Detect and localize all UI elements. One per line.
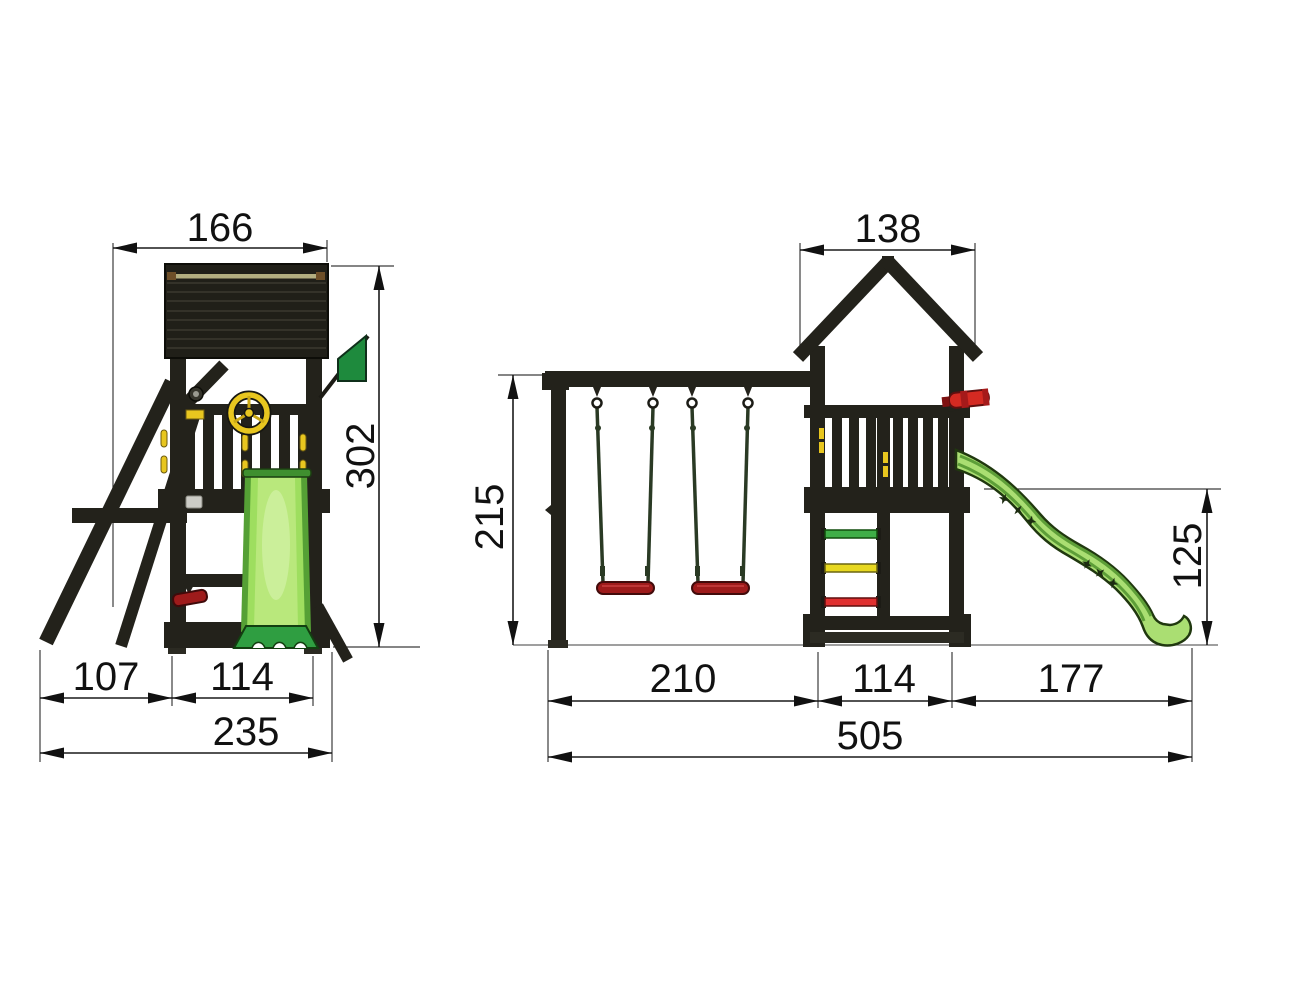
slide-side [234,469,318,648]
swing-seat [597,582,654,594]
label-tag [186,496,202,508]
dim-front-slide-height: 125 [1166,523,1210,590]
ladder [821,528,881,608]
flag-pennant [338,336,366,381]
ladder-rung-green [825,530,877,538]
swing-post [551,388,566,644]
dim-side-total-height: 302 [339,423,383,490]
post-foot [168,648,186,654]
ladder-rung-red [825,598,877,606]
slide-front [956,450,1191,646]
platform-front [804,498,970,513]
dim-front-total-width: 505 [837,714,904,758]
swings [593,387,753,594]
dim-side-total-depth: 235 [213,710,280,754]
roof-trim [168,274,324,279]
dim-front-slide-span: 177 [1038,657,1105,701]
swing-frame [542,371,817,648]
front-view: 138 215 125 210 114 177 505 [468,207,1221,763]
swing-seat [692,582,749,594]
dim-front-swing-span: 210 [650,657,717,701]
dim-front-roof-width: 138 [855,207,922,251]
base-frame-front [803,614,971,647]
railing-bottom-rail [804,487,970,499]
dim-front-swing-height: 215 [468,484,512,551]
yellow-tag [186,410,204,419]
swing-ropes [597,407,748,583]
dimension-drawing-playset: 166 302 107 114 235 [0,0,1300,1000]
ladder-rung-yellow [825,564,877,572]
dim-front-base-width: 114 [852,657,916,701]
dim-side-roof-width: 166 [187,206,254,250]
rope-rings [593,399,753,408]
drawing-canvas: 166 302 107 114 235 [0,0,1300,1000]
dim-side-base-depth: 114 [210,655,274,699]
roof-side [165,264,328,358]
swing-top-beam [545,371,817,387]
side-view: 166 302 107 114 235 [40,206,420,762]
gable-roof [798,256,978,357]
dim-side-front-offset: 107 [73,655,140,699]
